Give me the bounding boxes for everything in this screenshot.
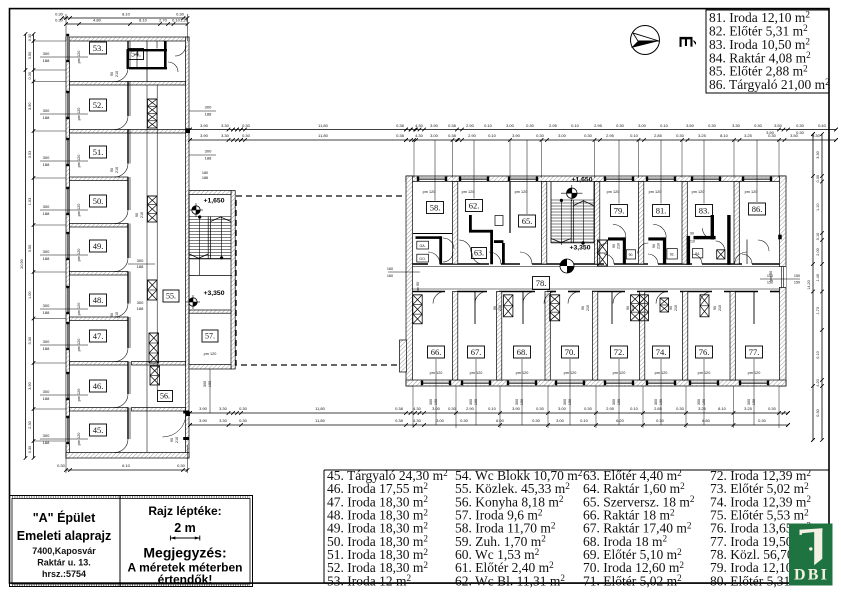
svg-text:pm 120: pm 120 — [649, 190, 662, 194]
svg-text:8.10: 8.10 — [139, 18, 148, 23]
svg-text:0.10: 0.10 — [630, 406, 639, 411]
svg-text:pm 120: pm 120 — [204, 352, 217, 356]
svg-text:6.80: 6.80 — [702, 418, 711, 423]
svg-text:3.30: 3.30 — [732, 123, 741, 128]
svg-text:46.: 46. — [93, 381, 104, 391]
svg-text:pm 120: pm 120 — [77, 108, 81, 121]
svg-text:11,80: 11,80 — [318, 123, 328, 128]
svg-text:0.10: 0.10 — [580, 418, 589, 423]
svg-text:180: 180 — [202, 171, 208, 175]
svg-text:3.50: 3.50 — [774, 123, 783, 128]
svg-text:DBI: DBI — [794, 567, 829, 584]
svg-text:79.: 79. — [614, 205, 625, 215]
svg-text:3.30: 3.30 — [28, 337, 32, 344]
svg-text:pm 120: pm 120 — [77, 303, 81, 316]
svg-text:8.10: 8.10 — [720, 133, 729, 138]
svg-text:4.20: 4.20 — [816, 379, 820, 386]
svg-text:3.25: 3.25 — [698, 133, 707, 138]
svg-text:210: 210 — [657, 243, 661, 249]
svg-text:190: 190 — [208, 381, 212, 387]
svg-text:210: 210 — [115, 71, 119, 77]
svg-text:300: 300 — [654, 399, 658, 405]
svg-text:188: 188 — [43, 346, 50, 351]
svg-text:57.: 57. — [205, 332, 215, 341]
svg-text:értendők!: értendők! — [158, 573, 213, 587]
svg-text:0.30: 0.30 — [28, 34, 32, 41]
svg-text:83.: 83. — [699, 205, 710, 215]
svg-text:190: 190 — [702, 399, 706, 405]
svg-text:0.30: 0.30 — [796, 130, 805, 135]
svg-text:0.30: 0.30 — [55, 12, 64, 17]
svg-text:0.30: 0.30 — [536, 406, 545, 411]
svg-text:Megjegyzés:: Megjegyzés: — [143, 545, 226, 561]
svg-text:188: 188 — [43, 115, 50, 120]
svg-text:2.90: 2.90 — [466, 406, 475, 411]
svg-text:pm 120: pm 120 — [745, 190, 758, 194]
svg-text:70.: 70. — [565, 347, 576, 357]
svg-text:84.: 84. — [695, 252, 700, 256]
svg-text:3.30: 3.30 — [816, 151, 820, 158]
svg-text:210: 210 — [689, 240, 695, 244]
svg-text:190: 190 — [474, 399, 478, 405]
svg-text:50.: 50. — [93, 196, 104, 206]
svg-text:2.95: 2.95 — [606, 133, 615, 138]
svg-text:0.10: 0.10 — [630, 133, 639, 138]
svg-text:11,80: 11,80 — [315, 418, 325, 423]
svg-text:45.: 45. — [93, 425, 104, 435]
svg-text:0.10: 0.10 — [484, 123, 493, 128]
svg-text:150: 150 — [767, 281, 773, 285]
svg-text:160: 160 — [387, 267, 393, 271]
svg-text:188: 188 — [43, 440, 50, 445]
svg-text:+1,650: +1,650 — [572, 177, 593, 184]
svg-text:4.80: 4.80 — [93, 18, 102, 23]
svg-text:GA.: GA. — [419, 244, 425, 248]
svg-text:90: 90 — [669, 306, 673, 310]
svg-text:0.38: 0.38 — [395, 418, 404, 423]
svg-text:11,80: 11,80 — [318, 133, 328, 138]
svg-text:0.30: 0.30 — [177, 463, 186, 468]
svg-text:54.: 54. — [131, 50, 141, 59]
svg-text:0.30: 0.30 — [526, 123, 535, 128]
svg-text:3.25: 3.25 — [744, 133, 753, 138]
svg-text:3.90: 3.90 — [28, 103, 32, 110]
svg-text:1.00: 1.00 — [28, 292, 32, 299]
svg-text:Raktár u. 13.: Raktár u. 13. — [37, 558, 91, 568]
svg-text:0.30: 0.30 — [460, 418, 469, 423]
svg-text:210: 210 — [674, 305, 678, 311]
svg-text:86. Tárgyaló 21,00 m2: 86. Tárgyaló 21,00 m2 — [709, 77, 830, 92]
svg-text:20,90: 20,90 — [20, 259, 24, 269]
svg-text:7400,Kaposvár: 7400,Kaposvár — [32, 546, 96, 556]
svg-text:0.30: 0.30 — [28, 446, 32, 453]
svg-text:90: 90 — [135, 213, 139, 217]
svg-text:0.30: 0.30 — [584, 406, 593, 411]
svg-text:3.50: 3.50 — [686, 123, 695, 128]
svg-text:0.38: 0.38 — [395, 406, 404, 411]
svg-text:pm 120: pm 120 — [423, 190, 436, 194]
svg-text:4.30: 4.30 — [413, 418, 422, 423]
svg-text:150: 150 — [767, 274, 773, 278]
svg-text:62. Wc Bl. 11,31 m2: 62. Wc Bl. 11,31 m2 — [455, 573, 565, 588]
svg-text:188: 188 — [137, 264, 144, 269]
svg-text:300: 300 — [43, 51, 50, 56]
svg-text:56.: 56. — [160, 392, 170, 401]
svg-text:188: 188 — [43, 396, 50, 401]
svg-text:0.30: 0.30 — [448, 406, 457, 411]
svg-text:0.10: 0.10 — [660, 123, 669, 128]
svg-text:0.38: 0.38 — [396, 123, 405, 128]
svg-text:90: 90 — [581, 306, 585, 310]
svg-text:63.: 63. — [474, 249, 484, 258]
svg-text:190: 190 — [617, 399, 621, 405]
svg-text:300: 300 — [469, 399, 473, 405]
svg-text:2.85: 2.85 — [654, 133, 663, 138]
svg-text:210: 210 — [617, 243, 621, 249]
svg-text:86.: 86. — [752, 204, 763, 214]
svg-text:É: É — [676, 36, 697, 48]
svg-text:0.30: 0.30 — [536, 133, 545, 138]
svg-text:pm 120: pm 120 — [77, 339, 81, 352]
svg-text:188: 188 — [43, 58, 50, 63]
svg-text:8.10: 8.10 — [718, 406, 727, 411]
svg-text:3.30: 3.30 — [219, 406, 228, 411]
svg-text:1.03: 1.03 — [28, 198, 32, 205]
svg-text:2.90: 2.90 — [468, 133, 477, 138]
svg-text:3.53: 3.53 — [28, 151, 32, 158]
svg-text:1.10: 1.10 — [816, 204, 820, 211]
svg-text:hrsz.:5754: hrsz.:5754 — [42, 569, 86, 579]
svg-text:3.90: 3.90 — [28, 382, 32, 389]
svg-text:pm 120: pm 120 — [462, 190, 475, 194]
svg-text:210: 210 — [175, 437, 179, 443]
svg-text:0.30: 0.30 — [239, 406, 248, 411]
svg-text:188: 188 — [43, 310, 50, 315]
svg-text:77.: 77. — [749, 347, 760, 357]
svg-text:11,80: 11,80 — [315, 406, 325, 411]
svg-text:6.00: 6.00 — [496, 418, 505, 423]
svg-text:90: 90 — [170, 438, 174, 442]
svg-text:90: 90 — [652, 244, 656, 248]
svg-text:pm 120: pm 120 — [77, 155, 81, 168]
svg-text:0.30: 0.30 — [57, 463, 66, 468]
svg-text:3.25: 3.25 — [698, 406, 707, 411]
svg-text:3.30: 3.30 — [221, 123, 230, 128]
svg-text:4.30: 4.30 — [415, 123, 424, 128]
svg-text:pm 120: pm 120 — [607, 190, 620, 194]
svg-text:0.10: 0.10 — [488, 406, 497, 411]
svg-text:300: 300 — [43, 433, 50, 438]
svg-text:92.: 92. — [670, 252, 675, 256]
svg-text:49.: 49. — [93, 241, 104, 251]
svg-text:0.38: 0.38 — [448, 123, 457, 128]
svg-text:0.40: 0.40 — [818, 123, 827, 128]
svg-text:78.: 78. — [536, 278, 547, 288]
svg-text:GO.: GO. — [419, 257, 426, 261]
svg-text:190: 190 — [568, 399, 572, 405]
svg-text:0.30: 0.30 — [754, 123, 763, 128]
svg-text:150: 150 — [794, 274, 800, 278]
svg-text:190: 190 — [520, 399, 524, 405]
svg-text:81.: 81. — [656, 205, 667, 215]
svg-text:0.30: 0.30 — [656, 418, 665, 423]
svg-text:300: 300 — [697, 399, 701, 405]
svg-text:0.30: 0.30 — [708, 123, 717, 128]
svg-text:8.10: 8.10 — [122, 12, 131, 17]
svg-text:Emeleti alaprajz: Emeleti alaprajz — [17, 529, 112, 543]
svg-text:4.30: 4.30 — [415, 133, 424, 138]
svg-text:300: 300 — [43, 155, 50, 160]
svg-text:1.40: 1.40 — [816, 274, 820, 281]
svg-text:48.: 48. — [93, 295, 104, 305]
svg-text:pm 120: pm 120 — [77, 433, 81, 446]
svg-text:72.: 72. — [614, 347, 625, 357]
svg-text:0.30: 0.30 — [768, 406, 777, 411]
svg-text:300: 300 — [205, 149, 212, 154]
svg-text:2 m: 2 m — [174, 521, 196, 535]
svg-text:90: 90 — [713, 306, 717, 310]
svg-text:300: 300 — [43, 204, 50, 209]
svg-text:pm 120: pm 120 — [515, 190, 528, 194]
svg-text:0.30: 0.30 — [816, 175, 820, 182]
svg-text:300: 300 — [515, 399, 519, 405]
svg-text:+1,650: +1,650 — [204, 198, 225, 205]
svg-text:3.00: 3.00 — [558, 133, 567, 138]
svg-text:210: 210 — [140, 212, 144, 218]
svg-text:190: 190 — [752, 399, 756, 405]
svg-text:300: 300 — [43, 303, 50, 308]
svg-text:0.30: 0.30 — [532, 418, 541, 423]
svg-text:2.95: 2.95 — [549, 123, 558, 128]
svg-text:300: 300 — [203, 381, 207, 387]
svg-text:65.: 65. — [522, 216, 533, 226]
svg-text:2.30: 2.30 — [28, 421, 32, 428]
svg-text:+3,350: +3,350 — [204, 290, 225, 297]
svg-text:pm 120: pm 120 — [77, 51, 81, 64]
svg-text:0.30: 0.30 — [676, 406, 685, 411]
svg-text:3.90: 3.90 — [199, 406, 208, 411]
svg-text:0.38: 0.38 — [448, 133, 457, 138]
svg-text:pm 120: pm 120 — [77, 389, 81, 402]
svg-text:0.30: 0.30 — [55, 18, 64, 23]
svg-text:6.20: 6.20 — [616, 418, 625, 423]
svg-text:0.30: 0.30 — [676, 133, 685, 138]
svg-text:2.85: 2.85 — [654, 406, 663, 411]
svg-text:"A" Épület: "A" Épület — [33, 510, 96, 525]
svg-text:188: 188 — [205, 112, 212, 117]
svg-text:62.: 62. — [469, 200, 480, 210]
svg-text:300: 300 — [137, 300, 144, 305]
svg-text:300: 300 — [563, 399, 567, 405]
svg-text:3.00: 3.00 — [558, 406, 567, 411]
svg-text:67.: 67. — [471, 347, 482, 357]
svg-text:53.: 53. — [93, 43, 104, 53]
svg-text:2.00: 2.00 — [816, 248, 820, 255]
svg-text:3.25: 3.25 — [744, 406, 753, 411]
svg-text:2.90: 2.90 — [466, 123, 475, 128]
svg-text:3.50: 3.50 — [28, 245, 32, 252]
svg-text:2.70: 2.70 — [159, 18, 168, 23]
svg-text:55.: 55. — [166, 292, 176, 301]
svg-text:3.30: 3.30 — [221, 133, 230, 138]
svg-text:0.30: 0.30 — [816, 409, 820, 416]
svg-text:3.90: 3.90 — [512, 133, 521, 138]
svg-text:3.50: 3.50 — [28, 52, 32, 59]
svg-text:3.00: 3.00 — [430, 133, 439, 138]
svg-text:53. Iroda 12 m2: 53. Iroda 12 m2 — [327, 573, 411, 588]
svg-text:90: 90 — [110, 313, 114, 317]
svg-text:188: 188 — [43, 211, 50, 216]
svg-text:210: 210 — [115, 167, 119, 173]
svg-text:90.: 90. — [629, 253, 634, 257]
svg-text:0.30: 0.30 — [242, 133, 251, 138]
svg-text:188: 188 — [205, 156, 212, 161]
svg-text:58.: 58. — [430, 202, 441, 212]
svg-text:188: 188 — [137, 306, 144, 311]
svg-text:0.30: 0.30 — [616, 123, 625, 128]
svg-text:3.00: 3.00 — [556, 418, 565, 423]
svg-text:300: 300 — [43, 249, 50, 254]
svg-text:300: 300 — [747, 399, 751, 405]
svg-text:90: 90 — [110, 168, 114, 172]
svg-text:3.90: 3.90 — [200, 123, 209, 128]
svg-text:0.10: 0.10 — [488, 133, 497, 138]
svg-text:0.38: 0.38 — [396, 133, 405, 138]
svg-text:210: 210 — [586, 305, 590, 311]
svg-text:pm 120: pm 120 — [692, 190, 705, 194]
svg-text:6.10: 6.10 — [122, 463, 131, 468]
svg-text:0.30: 0.30 — [239, 418, 248, 423]
svg-text:300: 300 — [429, 399, 433, 405]
svg-text:0.10: 0.10 — [816, 233, 820, 240]
svg-text:210: 210 — [718, 305, 722, 311]
svg-text:90: 90 — [626, 306, 630, 310]
svg-text:0.30: 0.30 — [758, 418, 767, 423]
svg-text:3.50: 3.50 — [766, 130, 775, 135]
svg-text:160: 160 — [387, 274, 393, 278]
svg-text:2.95: 2.95 — [606, 406, 615, 411]
svg-text:3.00: 3.00 — [506, 123, 515, 128]
svg-text:pm 120: pm 120 — [77, 249, 81, 262]
svg-text:+3,350: +3,350 — [570, 245, 591, 252]
svg-text:52.: 52. — [93, 100, 104, 110]
svg-text:1.73: 1.73 — [816, 307, 820, 314]
svg-text:71. Előtér 5,02 m2: 71. Előtér 5,02 m2 — [583, 573, 682, 588]
svg-text:300: 300 — [137, 258, 144, 263]
svg-text:0.30: 0.30 — [796, 123, 805, 128]
svg-text:3.00: 3.00 — [432, 406, 441, 411]
svg-text:0.30: 0.30 — [176, 12, 185, 17]
svg-text:186: 186 — [202, 176, 208, 180]
svg-text:90: 90 — [612, 244, 616, 248]
svg-text:210: 210 — [115, 312, 119, 318]
svg-text:188: 188 — [43, 256, 50, 261]
svg-text:3.90: 3.90 — [199, 418, 208, 423]
svg-text:0.30: 0.30 — [242, 123, 251, 128]
svg-text:3.00: 3.00 — [436, 418, 445, 423]
svg-text:3.00: 3.00 — [638, 123, 647, 128]
svg-text:14,20: 14,20 — [807, 280, 811, 290]
svg-text:47.: 47. — [93, 331, 104, 341]
svg-text:300: 300 — [205, 105, 212, 110]
svg-text:190: 190 — [434, 399, 438, 405]
svg-text:3.90: 3.90 — [512, 406, 521, 411]
svg-text:210: 210 — [631, 305, 635, 311]
svg-text:76.: 76. — [699, 347, 710, 357]
svg-text:190: 190 — [659, 399, 663, 405]
svg-text:Rajz léptéke:: Rajz léptéke: — [148, 504, 221, 518]
svg-text:3.30: 3.30 — [219, 418, 228, 423]
svg-text:210: 210 — [498, 305, 502, 311]
svg-text:3.90: 3.90 — [430, 123, 439, 128]
svg-text:90: 90 — [690, 232, 694, 236]
svg-text:188: 188 — [43, 162, 50, 167]
svg-text:300: 300 — [43, 339, 50, 344]
svg-text:68.: 68. — [517, 347, 528, 357]
svg-text:66.: 66. — [431, 347, 442, 357]
svg-text:pm 120: pm 120 — [77, 204, 81, 217]
svg-text:4.30: 4.30 — [413, 406, 422, 411]
svg-text:150: 150 — [794, 281, 800, 285]
svg-text:0.10: 0.10 — [571, 123, 580, 128]
svg-text:0.30: 0.30 — [28, 72, 32, 79]
svg-text:0.30: 0.30 — [584, 133, 593, 138]
svg-text:74.: 74. — [656, 347, 667, 357]
svg-text:300: 300 — [612, 399, 616, 405]
svg-text:51.: 51. — [93, 147, 104, 157]
svg-text:300: 300 — [43, 108, 50, 113]
svg-text:pm 90: pm 90 — [416, 282, 420, 293]
svg-text:2.95: 2.95 — [594, 123, 603, 128]
svg-text:90: 90 — [110, 72, 114, 76]
svg-text:3.90: 3.90 — [200, 133, 209, 138]
svg-text:300: 300 — [43, 389, 50, 394]
svg-text:0.10: 0.10 — [816, 351, 820, 358]
svg-text:90: 90 — [493, 306, 497, 310]
